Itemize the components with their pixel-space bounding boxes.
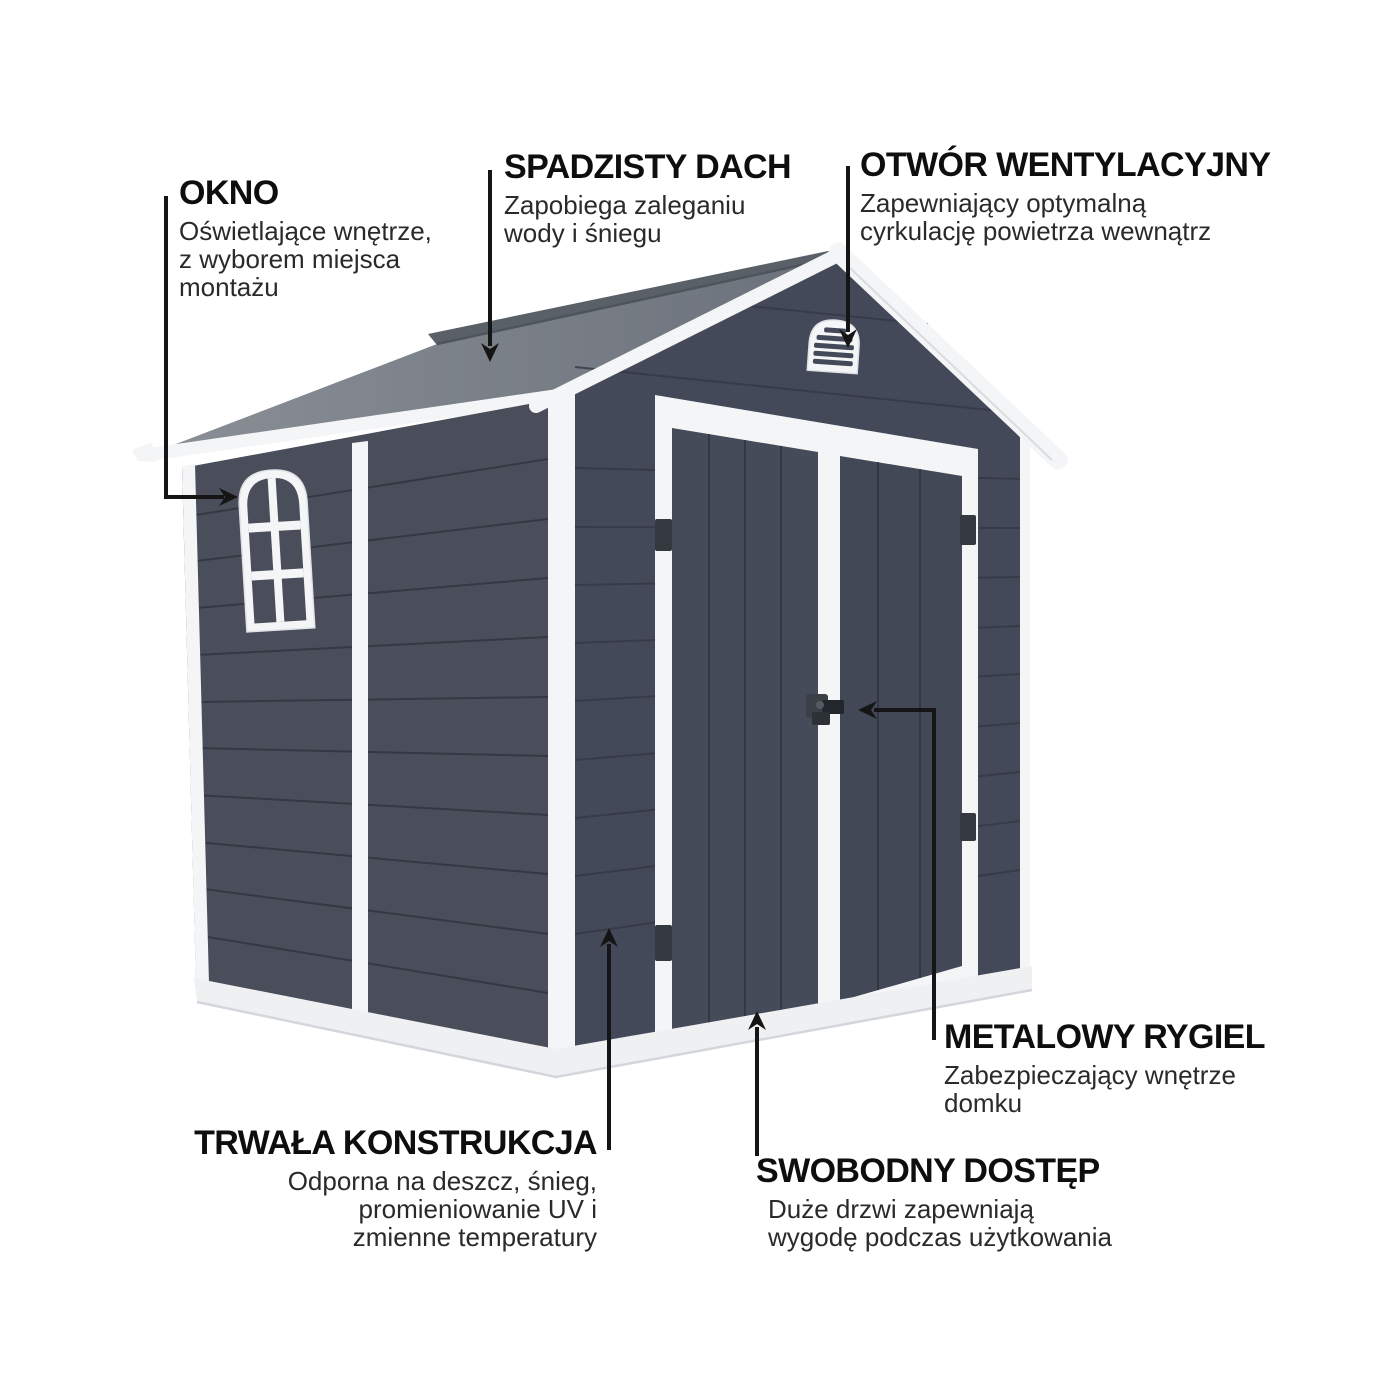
annotation-swobodny-dostep: SWOBODNY DOSTĘP Duże drzwi zapewniają wy… — [756, 1154, 1112, 1251]
door-right — [840, 456, 962, 1001]
left-wall-panel — [182, 399, 556, 1051]
annotation-description: Oświetlające wnętrze, z wyborem miejsca … — [179, 217, 432, 301]
annotation-description: Duże drzwi zapewniają wygodę podczas uży… — [756, 1195, 1112, 1251]
annotation-spadzisty-dach: SPADZISTY DACH Zapobiega zaleganiu wody … — [504, 150, 791, 247]
window — [237, 468, 315, 632]
annotation-description: Odporna na deszcz, śnieg, promieniowanie… — [137, 1167, 597, 1251]
annotation-trwala-konstrukcja: TRWAŁA KONSTRUKCJA Odporna na deszcz, śn… — [137, 1126, 597, 1251]
gable-vent — [807, 318, 861, 373]
annotation-title: SWOBODNY DOSTĘP — [756, 1154, 1112, 1190]
front-corner-trim-left — [548, 392, 575, 1051]
left-side-wall — [182, 399, 556, 1051]
annotation-title: TRWAŁA KONSTRUKCJA — [137, 1126, 597, 1162]
annotation-metalowy-rygiel: METALOWY RYGIEL Zabezpieczający wnętrze … — [944, 1020, 1265, 1117]
hinge-icon — [960, 813, 976, 841]
product-infographic: OKNO Oświetlające wnętrze, z wyborem mie… — [0, 0, 1400, 1400]
annotation-title: OTWÓR WENTYLACYJNY — [860, 148, 1270, 184]
side-wall-middle-trim — [352, 441, 368, 1015]
hinge-icon — [960, 515, 976, 545]
door-center-post — [818, 450, 840, 1005]
hinge-icon — [655, 925, 672, 961]
double-doors — [655, 395, 978, 1045]
annotation-description: Zapobiega zaleganiu wody i śniegu — [504, 191, 791, 247]
annotation-description: Zapewniający optymalną cyrkulację powiet… — [860, 189, 1270, 245]
annotation-title: SPADZISTY DACH — [504, 150, 791, 186]
annotation-title: OKNO — [179, 176, 432, 212]
annotation-okno: OKNO Oświetlające wnętrze, z wyborem mie… — [179, 176, 432, 301]
hinge-icon — [655, 519, 672, 551]
annotation-title: METALOWY RYGIEL — [944, 1020, 1265, 1056]
annotation-description: Zabezpieczający wnętrze domku — [944, 1061, 1265, 1117]
annotation-otwor-wentylacyjny: OTWÓR WENTYLACYJNY Zapewniający optymaln… — [860, 148, 1270, 245]
front-corner-trim-right — [1020, 425, 1030, 970]
